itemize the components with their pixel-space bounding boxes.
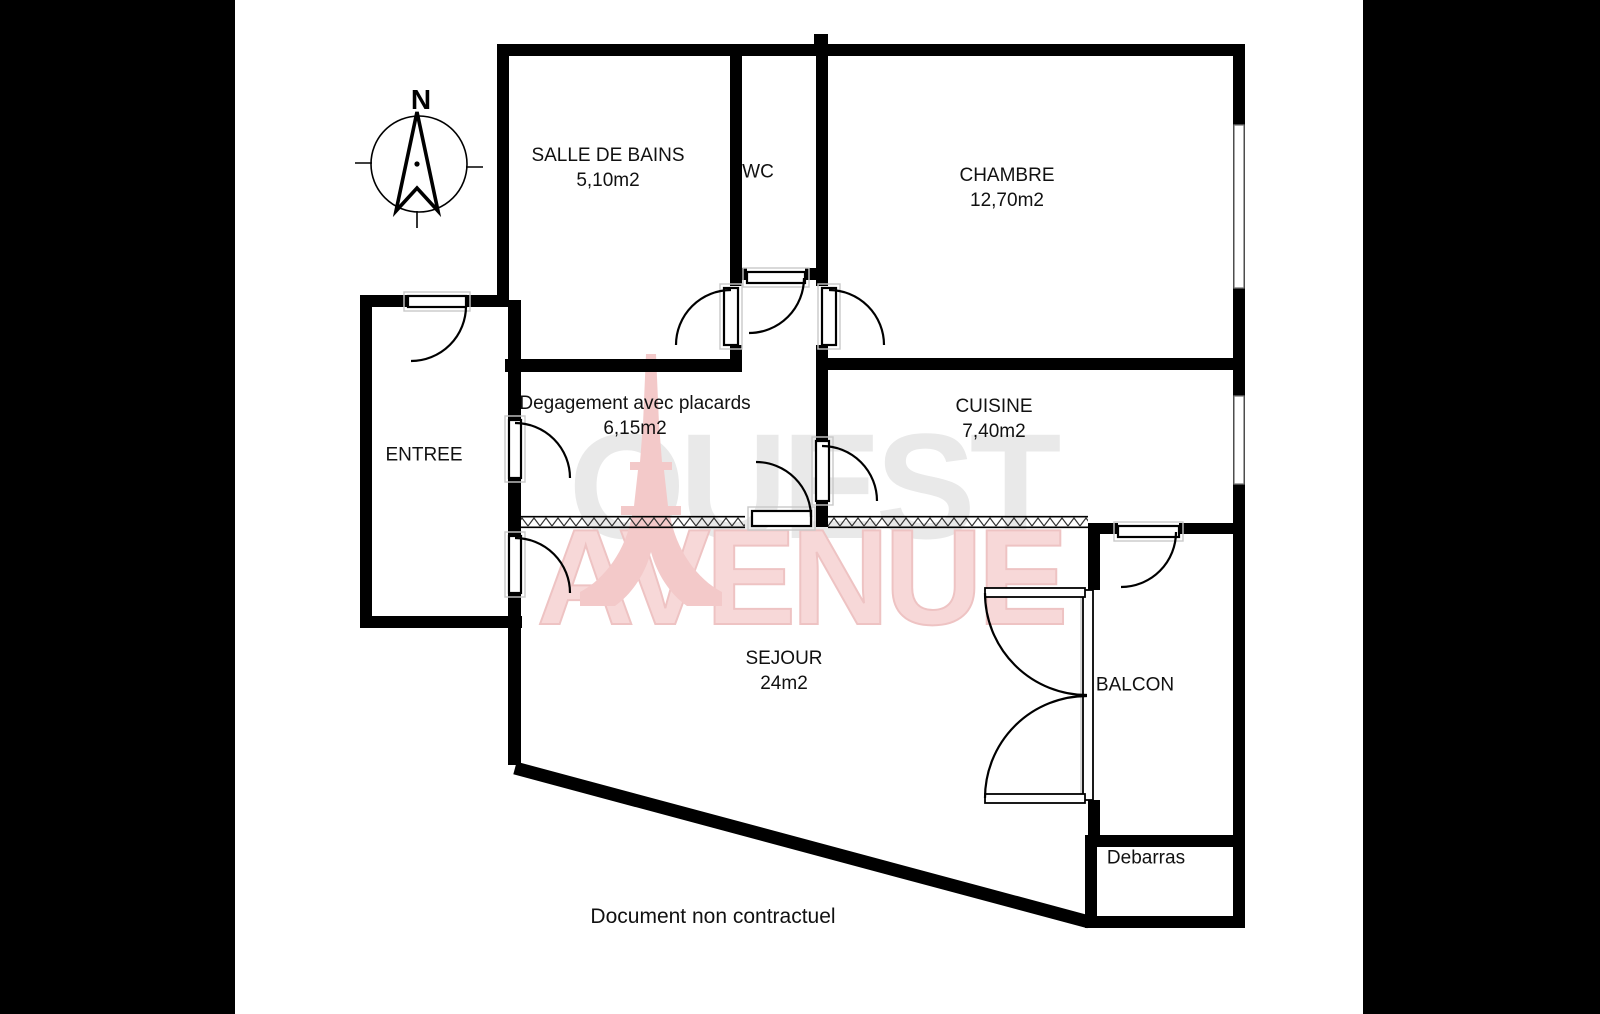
compass-north-label: N bbox=[411, 84, 431, 116]
floor-plan-page: OUEST AVENUE bbox=[0, 0, 1600, 1014]
room-label-salle-de-bains: SALLE DE BAINS 5,10m2 bbox=[531, 143, 684, 193]
floor-plan-drawing bbox=[0, 0, 1600, 1014]
wc-door bbox=[743, 268, 809, 333]
room-label-balcon: BALCON bbox=[1096, 673, 1174, 698]
room-name: WC bbox=[742, 160, 774, 185]
salle-de-bains-door bbox=[676, 284, 742, 349]
disclaimer-text: Document non contractuel bbox=[590, 905, 835, 929]
walls bbox=[360, 34, 1245, 928]
room-label-chambre: CHAMBRE 12,70m2 bbox=[959, 163, 1054, 213]
sejour-diagonal-wall bbox=[515, 768, 1089, 922]
room-name: BALCON bbox=[1096, 673, 1174, 698]
room-name: SEJOUR bbox=[745, 646, 822, 671]
room-name: CHAMBRE bbox=[959, 163, 1054, 188]
letterbox-left bbox=[0, 0, 235, 1014]
room-name: ENTREE bbox=[385, 443, 462, 468]
room-area: 7,40m2 bbox=[955, 419, 1032, 444]
room-label-sejour: SEJOUR 24m2 bbox=[745, 646, 822, 696]
entree-sejour-door bbox=[505, 532, 570, 597]
room-area: 5,10m2 bbox=[531, 168, 684, 193]
room-area: 12,70m2 bbox=[959, 188, 1054, 213]
room-label-cuisine: CUISINE 7,40m2 bbox=[955, 394, 1032, 444]
room-name: Degagement avec placards bbox=[519, 391, 750, 416]
room-name: CUISINE bbox=[955, 394, 1032, 419]
sejour-balcon-french-door bbox=[985, 588, 1093, 803]
room-area: 6,15m2 bbox=[519, 416, 750, 441]
room-label-debarras: Debarras bbox=[1107, 846, 1185, 871]
degagement-sejour-door bbox=[748, 462, 815, 530]
cuisine-balcon-door bbox=[1114, 522, 1183, 587]
chambre-door bbox=[818, 284, 884, 349]
room-label-entree: ENTREE bbox=[385, 443, 462, 468]
cuisine-door bbox=[812, 437, 877, 505]
room-label-wc: WC bbox=[742, 160, 774, 185]
room-label-degagement: Degagement avec placards 6,15m2 bbox=[519, 391, 750, 441]
room-name: SALLE DE BAINS bbox=[531, 143, 684, 168]
letterbox-right bbox=[1363, 0, 1600, 1014]
chambre-window bbox=[1234, 125, 1244, 288]
entree-front-door bbox=[404, 292, 470, 361]
cuisine-window bbox=[1234, 396, 1244, 484]
room-name: Debarras bbox=[1107, 846, 1185, 871]
room-area: 24m2 bbox=[745, 671, 822, 696]
compass-rose bbox=[355, 112, 483, 228]
